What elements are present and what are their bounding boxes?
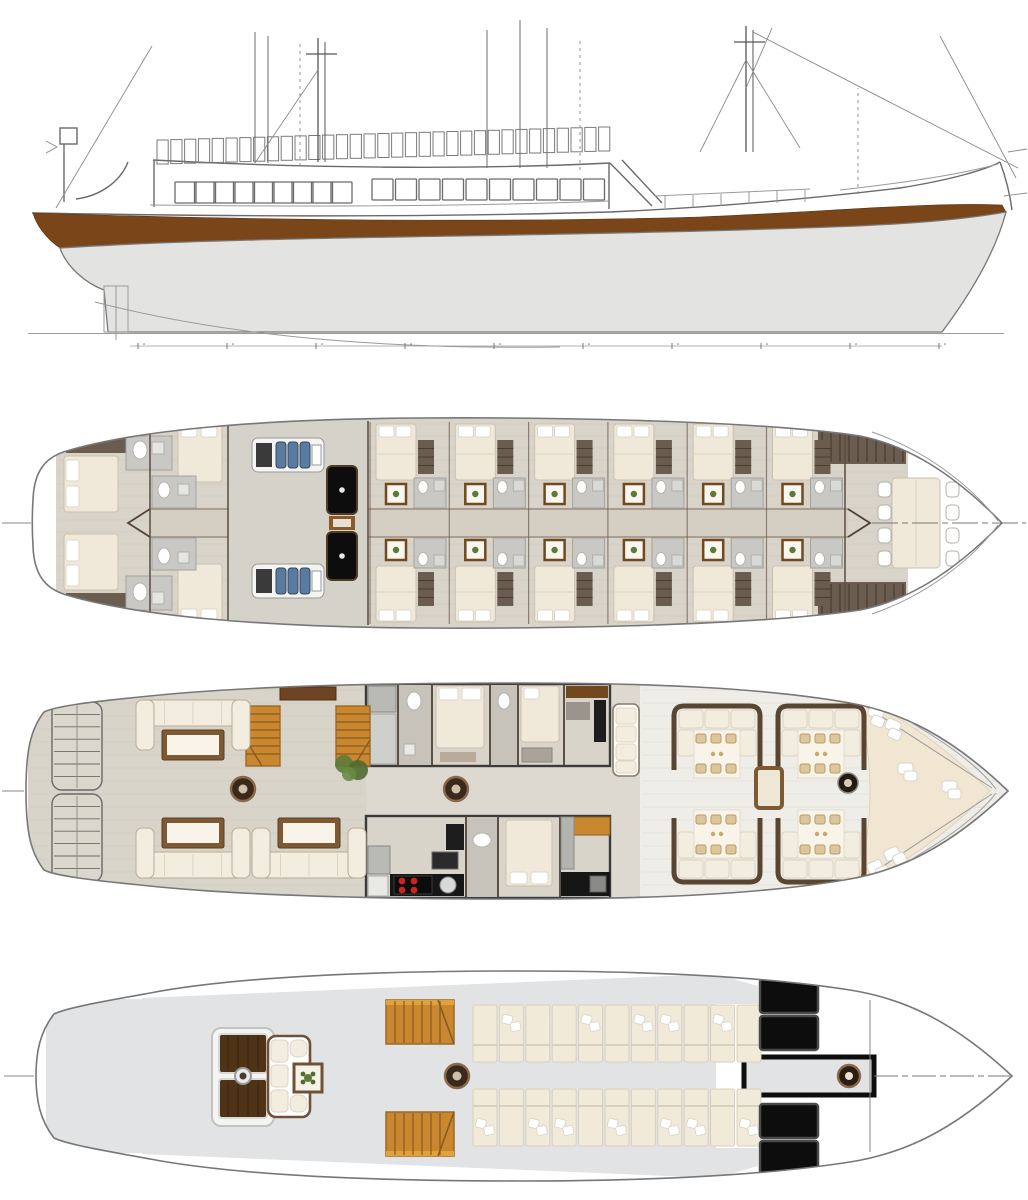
sunbed [737, 1005, 761, 1062]
sink [404, 744, 415, 755]
sunbed [499, 1089, 523, 1146]
crew-chair [878, 528, 891, 543]
place-setting [815, 845, 825, 854]
table-item [823, 752, 827, 756]
dimension-mark [499, 343, 501, 345]
stairs-port [246, 706, 280, 766]
place-setting [830, 764, 840, 773]
sun-deck-plan [4, 971, 1012, 1181]
pillow [617, 610, 632, 621]
place-setting [800, 764, 810, 773]
window [443, 179, 464, 200]
place-setting [726, 845, 736, 854]
table-item [815, 832, 819, 836]
plant [710, 491, 716, 497]
pillow [396, 610, 411, 621]
tank-cap [339, 487, 345, 493]
sink [152, 442, 164, 454]
dimension-mark [321, 343, 323, 345]
sunbed [605, 1005, 629, 1062]
railing-panel [226, 138, 237, 162]
sunbed-mattress [552, 1005, 576, 1062]
deckhouse-forward-block [366, 684, 610, 766]
shower [513, 480, 524, 491]
pillow [721, 1021, 732, 1032]
sunbed-mattress [684, 1089, 708, 1146]
dimension-mark [588, 343, 590, 345]
pillow [379, 426, 394, 437]
toilet [577, 553, 587, 566]
sunbed-mattress [499, 1005, 523, 1062]
helm-console [594, 700, 606, 742]
desk [522, 748, 552, 762]
settee-cushion [616, 744, 636, 760]
place-setting [696, 764, 706, 773]
railing-panel [198, 139, 209, 163]
engine-flange [312, 571, 321, 591]
sunbed [526, 1089, 550, 1146]
pillow [531, 872, 548, 884]
plant-leaf [301, 1072, 306, 1077]
window [372, 179, 393, 200]
table-item [815, 752, 819, 756]
burner [399, 887, 406, 894]
staircase [386, 1112, 454, 1156]
solar-panel [760, 1104, 818, 1138]
pillow [713, 610, 728, 621]
stair-body [386, 1000, 454, 1044]
dimension-mark [232, 343, 234, 345]
toilet [497, 553, 507, 566]
windlass-center [845, 1072, 853, 1080]
booth-cushion [679, 860, 703, 878]
sunbed-mattress [473, 1005, 497, 1062]
tank-cap [339, 553, 345, 559]
sunbed-mattress [526, 1089, 550, 1146]
window [490, 179, 511, 200]
railing-panel [267, 137, 278, 161]
window [312, 182, 333, 203]
railing-panel [433, 132, 444, 156]
plant-leaf [301, 1080, 306, 1085]
booth-cushion [844, 832, 860, 858]
lower-deck-plan [2, 418, 1026, 630]
sofa-cushion [271, 1040, 288, 1062]
sunbed-mattress [605, 1005, 629, 1062]
sunbed [711, 1089, 735, 1146]
pillow [66, 565, 79, 586]
toilet [158, 482, 170, 498]
booth-cushion [782, 832, 798, 858]
railing-panel [461, 131, 472, 155]
rigging-stay [700, 60, 746, 152]
toilet [133, 441, 147, 459]
cabinet [561, 817, 574, 869]
railing-panel [585, 127, 596, 151]
plant [789, 547, 795, 553]
pillow [475, 610, 490, 621]
railing-panel [212, 138, 223, 162]
table-item [719, 752, 723, 756]
pillow [483, 1125, 494, 1136]
plant [393, 547, 399, 553]
window [273, 182, 294, 203]
dimension-mark [944, 343, 946, 345]
sunbed-mattress [579, 1005, 603, 1062]
window [214, 182, 235, 203]
midship-davit [610, 160, 662, 206]
railing-panel [240, 138, 251, 162]
pillow [536, 1125, 547, 1136]
sunbed-mattress [631, 1005, 655, 1062]
wood-counter [574, 817, 610, 835]
sofa-arm [348, 828, 366, 878]
window [466, 179, 487, 200]
booth-cushion [782, 730, 798, 756]
burner [411, 878, 418, 885]
pillow [615, 1125, 626, 1136]
table-item [711, 832, 715, 836]
plant-table [294, 1064, 322, 1092]
pillow [475, 426, 490, 437]
booth-cushion [679, 710, 703, 728]
crew-chair [946, 505, 959, 520]
stair-edge [386, 1151, 454, 1156]
engine [252, 564, 324, 598]
railing-panel [281, 136, 292, 160]
tank-connector-top [333, 519, 351, 527]
plant [631, 491, 637, 497]
booth-cushion [835, 860, 859, 878]
cushion [904, 771, 917, 781]
place-setting [815, 764, 825, 773]
crew-chair [946, 482, 959, 497]
deck-hatch [756, 768, 782, 808]
pillow [696, 610, 711, 621]
flag-box [60, 128, 77, 144]
stair-landing [280, 687, 336, 700]
railing-panel [185, 139, 196, 163]
place-setting [696, 845, 706, 854]
sunbed-mattress [711, 1005, 735, 1062]
booth-cushion [844, 730, 860, 756]
railing-panel [557, 128, 568, 152]
shower [593, 555, 604, 566]
toilet [656, 553, 666, 566]
railing-panel [516, 129, 527, 153]
sunbed-mattress [658, 1089, 682, 1146]
window [560, 179, 581, 200]
pillow [538, 610, 553, 621]
toilet [577, 481, 587, 494]
booth-cushion [678, 730, 694, 756]
burner [411, 887, 418, 894]
pillow [510, 1021, 521, 1032]
plant [710, 547, 716, 553]
toilet [407, 692, 421, 710]
place-setting [800, 734, 810, 743]
sunbed-mattress [631, 1089, 655, 1146]
window [234, 182, 255, 203]
railing-panel [392, 133, 403, 157]
pillow [563, 1125, 574, 1136]
shower [751, 480, 762, 491]
sofa-arm [252, 828, 270, 878]
toilet [735, 553, 745, 566]
pillow [634, 610, 649, 621]
sunbed [552, 1089, 576, 1146]
stair-edge [386, 1000, 454, 1005]
bathroom-floor [467, 817, 497, 897]
shower [672, 480, 683, 491]
sunbed [526, 1005, 550, 1062]
booth-cushion [740, 730, 756, 756]
sofa-arm [232, 828, 250, 878]
stern-arc [76, 162, 128, 199]
booth-cushion [731, 860, 755, 878]
chart-area [566, 702, 590, 720]
plant-leaf [311, 1080, 316, 1085]
mast-base-center [239, 785, 248, 794]
staircase [246, 706, 280, 766]
plant [789, 491, 795, 497]
fridge [368, 846, 390, 874]
settee-cushion [616, 708, 636, 724]
toilet [498, 693, 510, 709]
place-setting [696, 734, 706, 743]
sofa-corner-cushion [290, 1095, 307, 1112]
main-deck-plan [2, 683, 1010, 899]
burner [399, 878, 406, 885]
crew-chair [878, 551, 891, 566]
engine [252, 438, 324, 472]
booth-cushion [731, 710, 755, 728]
counter [368, 714, 396, 764]
sunbed [473, 1089, 497, 1146]
railing-panel [336, 135, 347, 159]
plant-leaf [342, 767, 356, 781]
place-setting [815, 815, 825, 824]
booth-cushion [809, 860, 833, 878]
railing-panel [378, 134, 389, 158]
engine-flange [312, 445, 321, 465]
plant [472, 547, 478, 553]
pillow [634, 426, 649, 437]
sofa-arm [136, 700, 154, 750]
pillow [555, 610, 570, 621]
sink [178, 552, 189, 563]
engine-cylinder [276, 442, 286, 468]
sunbed [684, 1089, 708, 1146]
railing-panel [419, 132, 430, 156]
sunbed [658, 1005, 682, 1062]
table-pedestal-center [240, 1073, 247, 1080]
railing-panel [571, 128, 582, 152]
window [419, 179, 440, 200]
window [175, 182, 196, 203]
sunbed [684, 1005, 708, 1062]
sunbed [579, 1089, 603, 1146]
cabinet [368, 876, 388, 896]
plant [393, 491, 399, 497]
railing-panel [405, 133, 416, 157]
dimension-mark [410, 343, 412, 345]
sofa-corner-cushion [290, 1040, 307, 1057]
crew-chair [878, 505, 891, 520]
pillow [713, 426, 728, 437]
stern-bench [52, 702, 102, 790]
sunbed [631, 1005, 655, 1062]
railing-panel [599, 127, 610, 151]
galley-sink [440, 877, 456, 893]
pillow [66, 540, 79, 561]
pillow [668, 1021, 679, 1032]
coffee-table-top [167, 735, 219, 755]
deckhouse-roof [153, 160, 610, 167]
sunbed-mattress [737, 1005, 761, 1062]
booth-cushion [705, 710, 729, 728]
place-setting [830, 734, 840, 743]
railing-panel [474, 131, 485, 155]
railing-panel [295, 136, 306, 160]
pillow [538, 426, 553, 437]
sunbed [737, 1089, 761, 1146]
booth-cushion [740, 832, 756, 858]
window [513, 179, 534, 200]
pillow [695, 1125, 706, 1136]
sofa-cushion [271, 1090, 288, 1112]
sunbed-mattress [711, 1089, 735, 1146]
pillow [696, 426, 711, 437]
fridge [368, 686, 396, 712]
sunbed [658, 1089, 682, 1146]
settee-cushion [616, 726, 636, 742]
dimension-mark [855, 343, 857, 345]
pillow [589, 1021, 600, 1032]
plant [551, 547, 557, 553]
stern-lounge [212, 1028, 322, 1126]
crew-chair [946, 528, 959, 543]
toilet [418, 481, 428, 494]
place-setting [800, 815, 810, 824]
pillow [668, 1125, 679, 1136]
pillow [458, 610, 473, 621]
booth-cushion [783, 860, 807, 878]
engine-cylinder [288, 568, 298, 594]
sunbed-mattress [684, 1005, 708, 1062]
sunbed [473, 1005, 497, 1062]
toilet [656, 481, 666, 494]
table-item [711, 752, 715, 756]
yacht-ga-drawing [0, 0, 1028, 1200]
rigging-stay [746, 60, 800, 148]
pillow [555, 426, 570, 437]
pillow [396, 426, 411, 437]
rigging-stay [1004, 193, 1027, 196]
rigging-stay [753, 32, 1018, 168]
railing-panel [488, 130, 499, 154]
engine-cylinder [276, 568, 286, 594]
pillow [510, 872, 527, 884]
booth-cushion [809, 710, 833, 728]
railing-panel [447, 132, 458, 156]
window [584, 179, 605, 200]
sunbed [579, 1005, 603, 1062]
sunbed [605, 1089, 629, 1146]
solar-panel [760, 1016, 818, 1050]
sunbed-mattress [579, 1089, 603, 1146]
railing-panel [543, 129, 554, 153]
toilet [735, 481, 745, 494]
sunbed-mattress [526, 1005, 550, 1062]
sunbed-mattress [499, 1089, 523, 1146]
toilet [815, 553, 825, 566]
toilet [418, 553, 428, 566]
sunbed-mattress [658, 1005, 682, 1062]
tall-cabinet [446, 824, 464, 850]
microwave [432, 852, 458, 869]
window [195, 182, 216, 203]
crew-chair [878, 482, 891, 497]
table-item [719, 832, 723, 836]
window [537, 179, 558, 200]
pillow [66, 460, 79, 481]
place-setting [726, 734, 736, 743]
sunbed [552, 1005, 576, 1062]
place-setting [711, 764, 721, 773]
settee-cushion [616, 761, 636, 773]
railing-panel [171, 140, 182, 164]
sunbed-mattress [605, 1089, 629, 1146]
engine-block [256, 443, 272, 467]
shower [831, 480, 842, 491]
plant [472, 491, 478, 497]
bed-bench [440, 752, 476, 762]
sunbed [499, 1005, 523, 1062]
plant [551, 491, 557, 497]
pillow [462, 688, 481, 700]
engine-cylinder [300, 442, 310, 468]
pillow [524, 688, 539, 699]
coffee-table-top [167, 823, 219, 843]
place-setting [726, 815, 736, 824]
engine-block [256, 569, 272, 593]
booth-cushion [705, 860, 729, 878]
cushion [948, 789, 961, 799]
place-setting [711, 815, 721, 824]
dimension-mark [143, 343, 145, 345]
mast-base-center [452, 785, 461, 794]
toilet [473, 833, 491, 847]
pillow [793, 610, 808, 621]
pillow [793, 426, 808, 437]
sunbed [631, 1089, 655, 1146]
place-setting [711, 734, 721, 743]
shower [434, 480, 445, 491]
rigging-stay [56, 46, 152, 208]
rigging-stay [746, 28, 772, 88]
railing-panel [502, 130, 513, 154]
pillow [439, 688, 458, 700]
wardrobe [66, 438, 126, 453]
place-setting [800, 845, 810, 854]
toilet [158, 548, 170, 564]
sink [178, 484, 189, 495]
shower [593, 480, 604, 491]
window [331, 182, 352, 203]
stair-body [386, 1112, 454, 1156]
pillow [379, 610, 394, 621]
